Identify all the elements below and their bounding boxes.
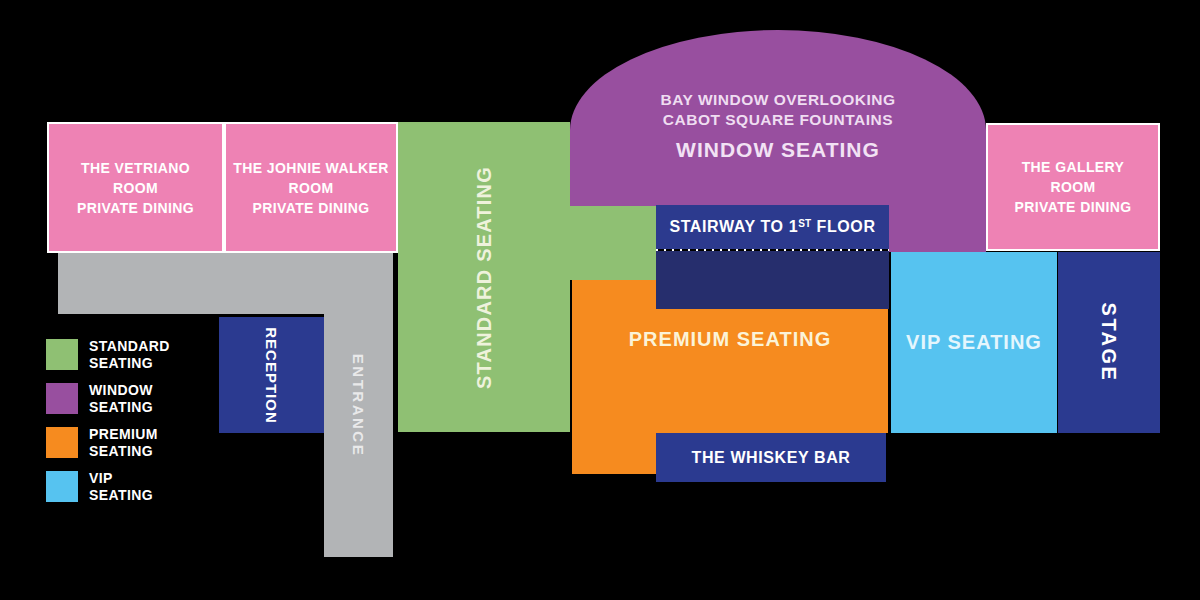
whiskey-bar-label: THE WHISKEY BAR [692, 449, 851, 467]
entrance-corridor: ENTRANCE [324, 253, 393, 557]
legend-swatch-standard [46, 339, 78, 370]
legend-label: VIP SEATING [89, 470, 153, 504]
standard-seating-label: STANDARD SEATING [473, 166, 496, 389]
room-vetriano-private-dining: THE VETRIANO ROOM PRIVATE DINING [47, 122, 224, 253]
standard-seating-area: STANDARD SEATING [398, 122, 570, 432]
reception-label: RECEPTION [263, 327, 280, 424]
legend-item-vip: VIP SEATING [46, 471, 170, 502]
window-seating-text: BAY WINDOW OVERLOOKING CABOT SQUARE FOUN… [570, 90, 986, 162]
legend-swatch-window [46, 383, 78, 414]
whiskey-bar-area: THE WHISKEY BAR [656, 433, 886, 482]
vip-seating-label: VIP SEATING [906, 331, 1042, 354]
bay-window-caption: CABOT SQUARE FOUNTAINS [570, 110, 986, 130]
vip-seating-area: VIP SEATING [891, 252, 1057, 433]
room-label: THE VETRIANO [81, 158, 190, 178]
legend-item-window: WINDOW SEATING [46, 383, 170, 414]
room-gallery-private-dining: THE GALLERY ROOM PRIVATE DINING [986, 123, 1160, 251]
stairway-lower-area [656, 251, 889, 309]
entrance-label: ENTRANCE [350, 353, 367, 456]
standard-seating-extension [570, 205, 656, 280]
stairway-label: STAIRWAY TO 1ST FLOOR [669, 218, 875, 236]
bay-window-caption: BAY WINDOW OVERLOOKING [570, 90, 986, 110]
venue-floor-plan: THE VETRIANO ROOM PRIVATE DINING THE JOH… [0, 0, 1200, 600]
stage-label: STAGE [1097, 303, 1120, 383]
stairway-dotted-line [656, 249, 889, 251]
premium-seating-area [572, 280, 656, 474]
legend-label: STANDARD SEATING [89, 338, 170, 372]
reception-area: RECEPTION [219, 317, 324, 433]
legend-swatch-vip [46, 471, 78, 502]
legend-item-premium: PREMIUM SEATING [46, 427, 170, 458]
room-label: PRIVATE DINING [77, 198, 194, 218]
legend-swatch-premium [46, 427, 78, 458]
window-seating-area: BAY WINDOW OVERLOOKING CABOT SQUARE FOUN… [570, 30, 986, 206]
room-label: ROOM [1050, 177, 1095, 197]
room-label: THE GALLERY [1022, 157, 1125, 177]
legend: STANDARD SEATING WINDOW SEATING PREMIUM … [46, 339, 170, 515]
stairway-area: STAIRWAY TO 1ST FLOOR [656, 205, 889, 249]
stage-area: STAGE [1058, 252, 1160, 433]
legend-item-standard: STANDARD SEATING [46, 339, 170, 370]
room-label: PRIVATE DINING [252, 198, 369, 218]
legend-label: PREMIUM SEATING [89, 426, 158, 460]
room-label: THE JOHNIE WALKER [233, 158, 388, 178]
room-label: ROOM [113, 178, 158, 198]
window-seating-extension [889, 205, 986, 252]
room-johnie-walker-private-dining: THE JOHNIE WALKER ROOM PRIVATE DINING [224, 122, 398, 253]
premium-seating-label: PREMIUM SEATING [572, 328, 888, 351]
legend-label: WINDOW SEATING [89, 382, 153, 416]
room-label: PRIVATE DINING [1014, 197, 1131, 217]
window-seating-label: WINDOW SEATING [570, 138, 986, 162]
room-label: ROOM [288, 178, 333, 198]
